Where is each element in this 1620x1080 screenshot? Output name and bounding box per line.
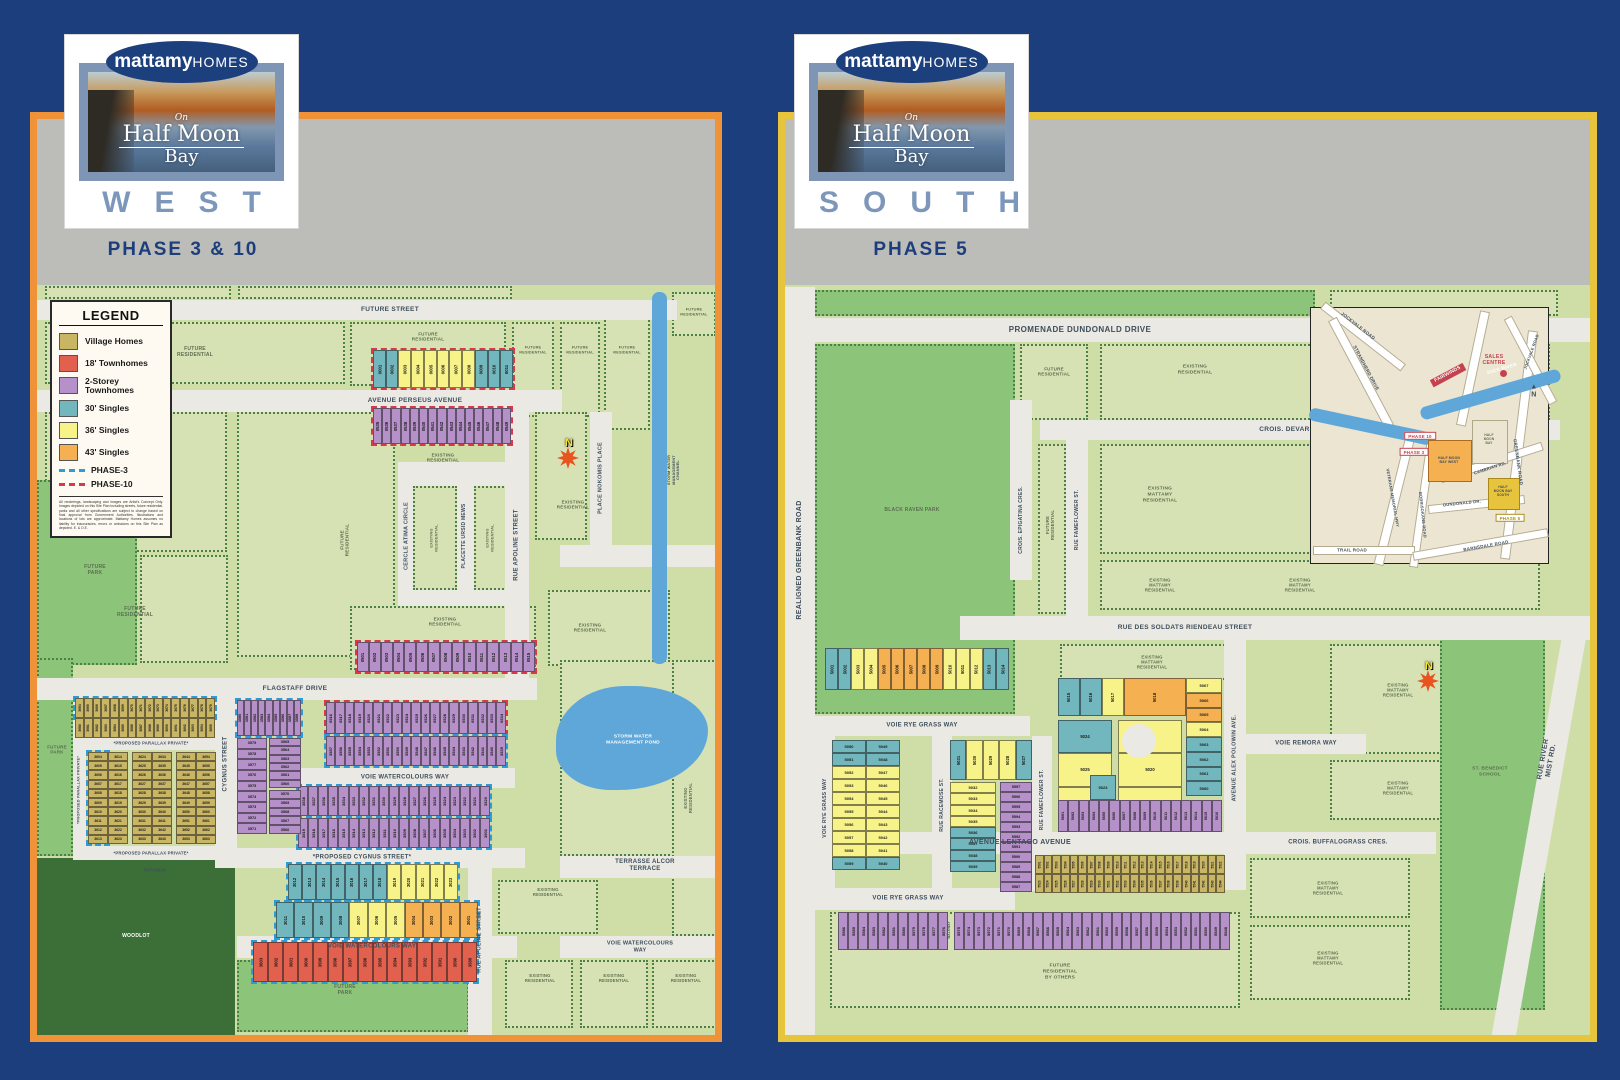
lot-row-5586-5576: 5586558555845583558255815580557955785577… — [838, 912, 948, 950]
street-label-promenade: PROMENADE DUNDONALD DRIVE — [1009, 325, 1151, 335]
area-label: FUTURE RESIDENTIAL — [519, 345, 546, 354]
lot-5578: 5578 — [918, 912, 928, 950]
lot-3632: 3632 — [132, 826, 152, 835]
lot-5010: 5010 — [943, 648, 956, 690]
lot-3678: 3678 — [198, 698, 207, 718]
lot-3653: 3653 — [176, 835, 196, 844]
lot-5028: 5028 — [999, 740, 1015, 780]
lot-col-village-5: 3644364536463647364836493650365136523653 — [176, 752, 196, 844]
lot-0541: 0541 — [428, 408, 437, 444]
street-label-proposed-cygnus: *PROPOSED CYGNUS STREET* — [313, 854, 412, 861]
lot-5023: 5023 — [1090, 775, 1116, 800]
lot-5035: 5035 — [950, 816, 996, 827]
lot-3517: 3517 — [318, 818, 328, 848]
lot-3604: 3604 — [88, 752, 108, 761]
lot-0508: 0508 — [440, 642, 452, 672]
lot-5572: 5572 — [984, 912, 994, 950]
lot-0528: 0528 — [440, 702, 449, 734]
lot-row-5001-5014: 5001500250035004500550065007500850095010… — [825, 648, 1009, 690]
lot-row-0501-0515: 0501050205030504050505060507050805090510… — [357, 642, 535, 672]
area-label: EXISTING RESIDENTIAL — [557, 500, 589, 511]
lot-row-0001-0011: 0001000200030004000500060007000800090010… — [373, 350, 513, 388]
lot-3645: 3645 — [176, 761, 196, 770]
lot-3640: 3640 — [152, 807, 172, 816]
lot-col-3579-3571: 357935783577357635753574357335723571 — [237, 738, 267, 834]
lot-3504: 3504 — [450, 818, 460, 848]
lot-5616: 5616 — [1212, 800, 1222, 832]
lot-3583: 3583 — [258, 700, 265, 736]
inset-label-sales-centre: SALES CENTRE — [1483, 354, 1506, 366]
area-label: EXISTING MATTAMY RESIDENTIAL — [1143, 486, 1178, 503]
lot-5552: 5552 — [1181, 912, 1191, 950]
logo-caption: On Half Moon Bay — [818, 114, 1005, 166]
lot-row-3011-3001: 3011301030093008300730063005300430033002… — [276, 902, 478, 938]
lot-5518: 5518 — [1182, 855, 1191, 874]
area-label: EXISTING RESIDENTIAL — [429, 617, 461, 628]
legend: LEGEND Village Homes18' Townhomes2-Store… — [50, 300, 172, 538]
lot-3554: 3554 — [354, 736, 363, 766]
lot-0546: 0546 — [474, 408, 483, 444]
lot-3637: 3637 — [152, 780, 172, 789]
lot-0518: 0518 — [345, 702, 354, 734]
lot-3020: 3020 — [401, 864, 415, 900]
lot-5016: 5016 — [1080, 678, 1102, 716]
legend-swatch — [59, 355, 78, 372]
lot-3580: 3580 — [237, 700, 244, 736]
lot-row-village-b: 5523552455255526552755285529553055315532… — [1035, 874, 1225, 893]
lot-3621: 3621 — [108, 816, 128, 825]
block — [140, 555, 228, 663]
lot-col-village-6: 3654365536563657365836593660366136623663 — [196, 752, 216, 844]
lot-5009: 5009 — [930, 648, 943, 690]
lot-col-3570-3566: 35703569356835673566 — [269, 790, 301, 834]
lot-5508: 5508 — [1095, 855, 1104, 874]
street-label-ryegrass-u: VOIE RYE GRASS WAY — [886, 722, 957, 729]
lot-3670: 3670 — [128, 698, 137, 718]
lot-3021: 3021 — [416, 864, 430, 900]
lot-3661: 3661 — [196, 816, 216, 825]
lot-5539: 5539 — [1173, 874, 1182, 893]
lot-3611: 3611 — [88, 816, 108, 825]
lot-5550: 5550 — [1200, 912, 1210, 950]
lot-row-3557-3539: 3557355635553554355335523551355035493548… — [326, 736, 506, 766]
lot-5511: 5511 — [1121, 855, 1130, 874]
lot-5057: 5057 — [832, 831, 866, 844]
lot-3665: 3665 — [84, 698, 93, 718]
lot-0539: 0539 — [410, 408, 419, 444]
block-woodlot — [37, 858, 235, 1035]
lot-5565: 5565 — [1053, 912, 1063, 950]
street-label-soldats: RUE DES SOLDATS RIENDEAU STREET — [1118, 624, 1253, 632]
lot-3505: 3505 — [440, 818, 450, 848]
lot-0522: 0522 — [383, 702, 392, 734]
block-existing-res — [652, 960, 715, 1028]
lot-3541: 3541 — [478, 736, 487, 766]
lot-3012: 3012 — [288, 864, 302, 900]
street-label-atima: CERCLE ATIMA CIRCLE — [404, 502, 411, 570]
lot-3654: 3654 — [196, 752, 216, 761]
lot-5527: 5527 — [1070, 874, 1079, 893]
lot-0519: 0519 — [354, 702, 363, 734]
lot-3642: 3642 — [152, 826, 172, 835]
street-label-apoline-upper: RUE APOLINE STREET — [513, 509, 520, 581]
lot-0523: 0523 — [392, 702, 401, 734]
lot-5066: 5066 — [1186, 693, 1222, 708]
area-label: EXISTING RESIDENTIAL — [1178, 364, 1213, 376]
lot-3503: 3503 — [460, 818, 470, 848]
lot-3524: 3524 — [440, 786, 450, 816]
lot-5557: 5557 — [1131, 912, 1141, 950]
inset-north-arrow: ▲ N — [1530, 384, 1537, 401]
lot-3684: 3684 — [110, 718, 119, 738]
area-label: FUTURE PARK — [47, 745, 67, 756]
lot-3590: 3590 — [447, 942, 462, 982]
lot-5522: 5522 — [1216, 855, 1225, 874]
lot-3557: 3557 — [326, 736, 335, 766]
lot-5039: 5039 — [950, 861, 996, 872]
lot-3530: 3530 — [379, 786, 389, 816]
lot-3608: 3608 — [88, 789, 108, 798]
street-label-greenbank: REALIGNED GREENBANK ROAD — [796, 500, 804, 619]
lot-5532: 5532 — [1113, 874, 1122, 893]
lot-3614: 3614 — [108, 752, 128, 761]
lot-5612: 5612 — [1171, 800, 1181, 832]
legend-dash — [59, 469, 85, 472]
lot-row-3538-3520: 3538353735363535353435333532353135303529… — [298, 786, 490, 816]
lot-5505: 5505 — [1070, 855, 1079, 874]
lot-col-village-4: 3634363536363637363836393640364136423643 — [152, 752, 172, 844]
lot-5506: 5506 — [1078, 855, 1087, 874]
lot-3617: 3617 — [108, 780, 128, 789]
court-circle — [1122, 724, 1156, 758]
lot-3609: 3609 — [88, 798, 108, 807]
lot-5048: 5048 — [866, 753, 900, 766]
lot-3017: 3017 — [359, 864, 373, 900]
lot-3660: 3660 — [196, 807, 216, 816]
lot-0529: 0529 — [449, 702, 458, 734]
lot-5536: 5536 — [1147, 874, 1156, 893]
compass-north-letter: N — [1425, 660, 1433, 672]
lot-5013: 5013 — [983, 648, 996, 690]
area-label: EXISTING RESIDENTIAL — [427, 453, 459, 464]
lot-5570: 5570 — [1003, 912, 1013, 950]
lot-3555: 3555 — [345, 736, 354, 766]
legend-swatch — [59, 377, 78, 394]
lot-0007: 0007 — [449, 350, 462, 388]
lot-3004: 3004 — [405, 902, 423, 938]
area-label: EXISTING MATTAMY RESIDENTIAL — [1383, 780, 1413, 795]
lot-3628: 3628 — [132, 789, 152, 798]
block-green — [238, 286, 512, 299]
street-label-fameflower-l: RUE FAMEFLOWER ST. — [1039, 770, 1045, 831]
street-label-fameflower-u: RUE FAMEFLOWER ST. — [1074, 490, 1080, 551]
area-label: EXISTING RESIDENTIAL — [599, 973, 629, 983]
lot-5566: 5566 — [1043, 912, 1053, 950]
lot-5062: 5062 — [1186, 752, 1222, 767]
lot-3526: 3526 — [419, 786, 429, 816]
lot-5504: 5504 — [1061, 855, 1070, 874]
lot-col-village-1: 3604360536063607360836093610361136123613 — [88, 752, 108, 844]
lot-3588: 3588 — [294, 700, 301, 736]
lot-3607: 3607 — [88, 780, 108, 789]
lot-3522: 3522 — [460, 786, 470, 816]
lot-3543: 3543 — [459, 736, 468, 766]
lot-5064: 5064 — [1186, 722, 1222, 737]
lot-5609: 5609 — [1140, 800, 1150, 832]
lot-5003: 5003 — [851, 648, 864, 690]
lot-3664: 3664 — [75, 698, 84, 718]
lot-0504: 0504 — [393, 642, 405, 672]
legend-swatch — [59, 400, 78, 417]
lot-3575: 3575 — [237, 781, 267, 792]
phase-label-south: PHASE 5 — [873, 239, 968, 261]
lot-0511: 0511 — [476, 642, 488, 672]
lot-5540: 5540 — [1182, 874, 1191, 893]
lot-5574: 5574 — [964, 912, 974, 950]
block-existing-res — [580, 960, 648, 1028]
lot-3612: 3612 — [88, 826, 108, 835]
lot-3516: 3516 — [328, 818, 338, 848]
lot-3518: 3518 — [308, 818, 318, 848]
lot-5608: 5608 — [1130, 800, 1140, 832]
lot-3673: 3673 — [154, 698, 163, 718]
lot-3535: 3535 — [328, 786, 338, 816]
lot-0005: 0005 — [424, 350, 437, 388]
lot-3534: 3534 — [338, 786, 348, 816]
lot-5044: 5044 — [866, 805, 900, 818]
lot-5613: 5613 — [1181, 800, 1191, 832]
lot-3018: 3018 — [373, 864, 387, 900]
lot-3631: 3631 — [132, 816, 152, 825]
lot-3515: 3515 — [338, 818, 348, 848]
lot-0544: 0544 — [456, 408, 465, 444]
street-label-buffalograss: CROIS. BUFFALOGRASS CRES. — [1288, 839, 1388, 846]
inset-sales-dot — [1500, 370, 1507, 377]
lot-3619: 3619 — [108, 798, 128, 807]
lot-5563: 5563 — [1072, 912, 1082, 950]
lot-5595: 5595 — [1000, 802, 1032, 812]
lot-3540: 3540 — [487, 736, 496, 766]
legend-item-5: 43' Singles — [59, 444, 163, 461]
lot-3003: 3003 — [423, 902, 441, 938]
lot-5529: 5529 — [1087, 874, 1096, 893]
lot-row-5601-5616: 5601560256035604560556065607560856095610… — [1058, 800, 1222, 832]
lot-3647: 3647 — [176, 780, 196, 789]
logo-card-south: On Half Moon Bay mattamyHOMES SOUTH — [795, 35, 1028, 228]
lot-5605: 5605 — [1099, 800, 1109, 832]
lot-row-village-b: 3680368136823683368436853686368736883689… — [75, 718, 215, 738]
lot-5012: 5012 — [970, 648, 983, 690]
legend-item-3: 30' Singles — [59, 400, 163, 417]
street-label-lentago: AVENUE LENTAGO AVENUE — [969, 839, 1071, 847]
lot-0513: 0513 — [499, 642, 511, 672]
lot-3019: 3019 — [387, 864, 401, 900]
lot-0501: 0501 — [357, 642, 369, 672]
lot-3674: 3674 — [163, 698, 172, 718]
lot-3641: 3641 — [152, 816, 172, 825]
lot-3546: 3546 — [430, 736, 439, 766]
lot-5032: 5032 — [950, 782, 996, 793]
area-label: FUTURE PARK — [84, 564, 106, 576]
lot-3528: 3528 — [399, 786, 409, 816]
logo-caption: On Half Moon Bay — [88, 114, 275, 166]
lot-3527: 3527 — [409, 786, 419, 816]
lot-5067: 5067 — [1186, 678, 1222, 693]
lot-0526: 0526 — [421, 702, 430, 734]
lot-3502: 3502 — [470, 818, 480, 848]
street-label-watercolours-3: VOIE WATERCOLOURS WAY — [603, 940, 678, 953]
lot-3574: 3574 — [237, 791, 267, 802]
inset-label-hmb-south: HALF MOON BAY SOUTH — [1494, 486, 1513, 498]
lot-3603: 3603 — [253, 942, 268, 982]
lot-col-village-3: 3624362536263627362836293630363136323633 — [132, 752, 152, 844]
lot-5575: 5575 — [954, 912, 964, 950]
lot-5534: 5534 — [1130, 874, 1139, 893]
lot-3562: 3562 — [269, 763, 301, 771]
lot-5543: 5543 — [1208, 874, 1217, 893]
lot-0008: 0008 — [462, 350, 475, 388]
lot-3549: 3549 — [402, 736, 411, 766]
area-label-st-benedict: ST. BENEDICT SCHOOL — [1472, 766, 1508, 778]
legend-swatch — [59, 444, 78, 461]
lot-5011: 5011 — [956, 648, 969, 690]
lot-5583: 5583 — [868, 912, 878, 950]
street-label-ryegrass-b: VOIE RYE GRASS WAY — [872, 895, 943, 902]
lot-5526: 5526 — [1061, 874, 1070, 893]
lot-5594: 5594 — [1000, 812, 1032, 822]
lot-3579: 3579 — [237, 738, 267, 749]
lot-5042: 5042 — [866, 831, 900, 844]
area-label: EXISTING RESIDENTIAL — [429, 524, 438, 551]
lot-3513: 3513 — [359, 818, 369, 848]
lot-5059: 5059 — [832, 857, 866, 870]
lot-5014: 5014 — [996, 648, 1009, 690]
lot-0540: 0540 — [419, 408, 428, 444]
lot-5549: 5549 — [1210, 912, 1220, 950]
lot-3568: 3568 — [269, 808, 301, 817]
lot-row-5031-5027: 50315030502950285027 — [950, 740, 1032, 780]
lot-0006: 0006 — [437, 350, 450, 388]
lot-5045: 5045 — [866, 792, 900, 805]
lot-5509: 5509 — [1104, 855, 1113, 874]
lot-3001: 3001 — [460, 902, 478, 938]
lot-5580: 5580 — [898, 912, 908, 950]
lot-3659: 3659 — [196, 798, 216, 807]
lot-3680: 3680 — [75, 718, 84, 738]
area-label: FUTURE RESIDENTIAL — [1038, 367, 1070, 378]
lot-3501: 3501 — [480, 818, 490, 848]
block-existing-res — [535, 412, 587, 540]
street-label-parallax-v: *PROPOSED PARALLAX PRIVATE* — [77, 756, 82, 824]
lot-3585: 3585 — [273, 700, 280, 736]
lot-0549: 0549 — [502, 408, 511, 444]
lot-0537: 0537 — [391, 408, 400, 444]
lot-3508: 3508 — [409, 818, 419, 848]
legend-disclaimer: All renderings, landscaping and images a… — [59, 496, 163, 531]
lot-0517: 0517 — [335, 702, 344, 734]
lot-5040: 5040 — [866, 857, 900, 870]
lot-5530: 5530 — [1095, 874, 1104, 893]
inset-tag-phase10: PHASE 10 — [1404, 432, 1436, 440]
lot-5501: 5501 — [1035, 855, 1044, 874]
lot-0010: 0010 — [488, 350, 501, 388]
lot-5001: 5001 — [825, 648, 838, 690]
legend-item-0: Village Homes — [59, 333, 163, 350]
inset-tag-phase5: PHASE 5 — [1496, 514, 1525, 522]
lot-5503: 5503 — [1052, 855, 1061, 874]
lot-0531: 0531 — [468, 702, 477, 734]
lot-5538: 5538 — [1165, 874, 1174, 893]
legend-item-label: 2-Storey Townhomes — [85, 377, 134, 395]
lot-5553: 5553 — [1171, 912, 1181, 950]
legend-item-label: 36' Singles — [85, 426, 129, 435]
lot-3016: 3016 — [345, 864, 359, 900]
lot-5528: 5528 — [1078, 874, 1087, 893]
lot-5055: 5055 — [832, 805, 866, 818]
lot-5586: 5586 — [838, 912, 848, 950]
lot-3521: 3521 — [470, 786, 480, 816]
lot-3570: 3570 — [269, 790, 301, 799]
lot-3681: 3681 — [84, 718, 93, 738]
lot-0502: 0502 — [369, 642, 381, 672]
lot-3622: 3622 — [108, 826, 128, 835]
inset-label-trail: TRAIL ROAD — [1337, 547, 1367, 552]
lot-5036: 5036 — [950, 827, 996, 838]
lot-3685: 3685 — [119, 718, 128, 738]
lot-5585: 5585 — [848, 912, 858, 950]
area-label: EXISTING MATTAMY RESIDENTIAL — [1137, 654, 1167, 669]
area-label: EXISTING MATTAMY RESIDENTIAL — [1285, 577, 1315, 592]
lot-3547: 3547 — [421, 736, 430, 766]
site-plan-flyer: LEGEND Village Homes18' Townhomes2-Store… — [0, 0, 1620, 1080]
area-label: FUTURE RESIDENTIAL — [340, 524, 351, 556]
lot-5531: 5531 — [1104, 874, 1113, 893]
lot-3690: 3690 — [163, 718, 172, 738]
lot-0510: 0510 — [464, 642, 476, 672]
lot-0503: 0503 — [381, 642, 393, 672]
street-label-ryegrass-l: VOIE RYE GRASS WAY — [822, 778, 828, 837]
lot-3627: 3627 — [132, 780, 152, 789]
lot-5548: 5548 — [1220, 912, 1230, 950]
lot-5052: 5052 — [832, 766, 866, 779]
lot-3510: 3510 — [389, 818, 399, 848]
lot-3683: 3683 — [101, 718, 110, 738]
area-label: FUTURE RESIDENTIAL — [412, 332, 444, 343]
lot-5515: 5515 — [1156, 855, 1165, 874]
lot-3529: 3529 — [389, 786, 399, 816]
lot-3600: 3600 — [298, 942, 313, 982]
legend-item-4: 36' Singles — [59, 422, 163, 439]
street-label-ursid: PLACETTE URSID MEWS — [461, 503, 467, 568]
lot-5521: 5521 — [1208, 855, 1217, 874]
street-label-parallax-2: *PROPOSED PARALLAX PRIVATE* — [113, 850, 188, 855]
logo-card-west: On Half Moon Bay mattamyHOMES WEST — [65, 35, 298, 228]
lot-3688: 3688 — [145, 718, 154, 738]
lot-5510: 5510 — [1113, 855, 1122, 874]
lot-3581: 3581 — [244, 700, 251, 736]
lot-3643: 3643 — [152, 835, 172, 844]
lot-5524: 5524 — [1044, 874, 1053, 893]
lot-3569: 3569 — [269, 799, 301, 808]
legend-item-label: 30' Singles — [85, 404, 129, 413]
legend-swatch — [59, 422, 78, 439]
lot-5007: 5007 — [904, 648, 917, 690]
street-label-watercolours-1: VOIE WATERCOLOURS WAY — [361, 774, 449, 781]
lot-0545: 0545 — [465, 408, 474, 444]
street-label-walkway: WALKWAY — [948, 921, 952, 938]
lot-3525: 3525 — [429, 786, 439, 816]
lot-3577: 3577 — [237, 759, 267, 770]
